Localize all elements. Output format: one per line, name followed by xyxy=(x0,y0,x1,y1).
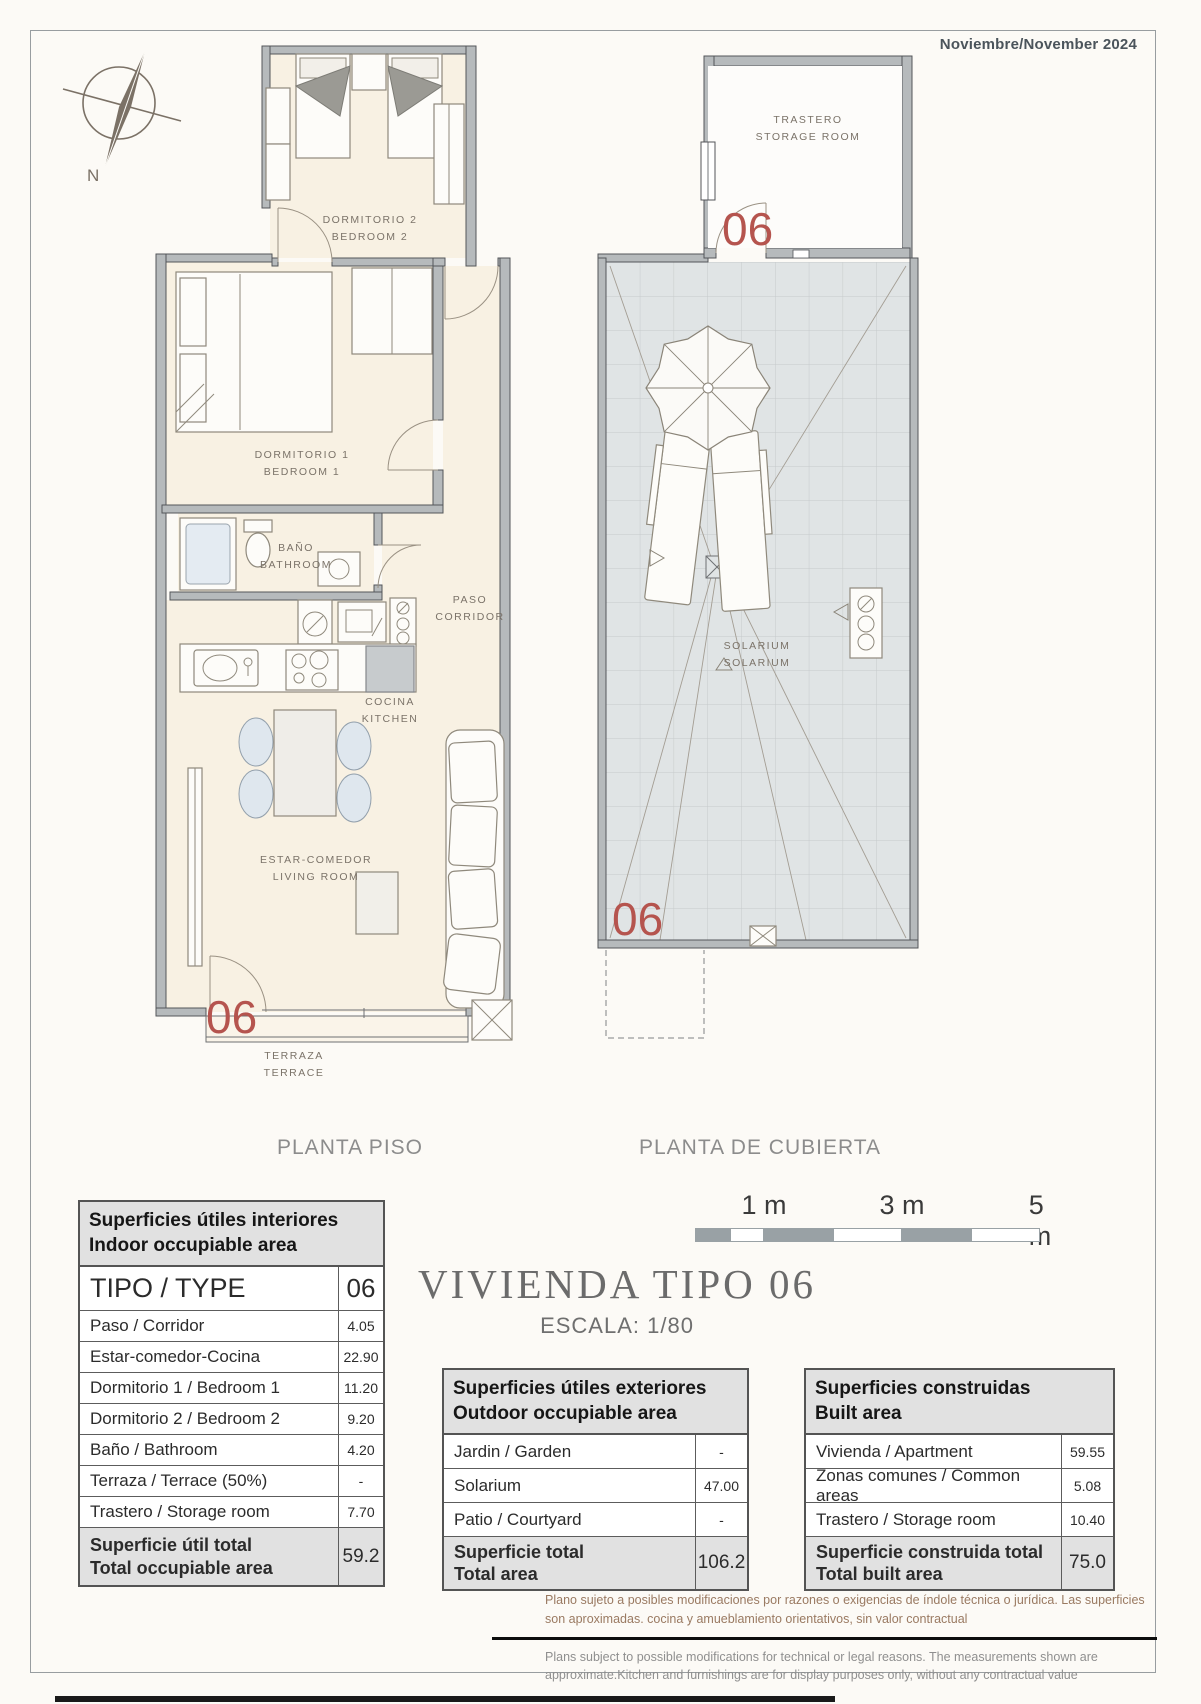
table-outdoor-areas: Superficies útiles exteriores Outdoor oc… xyxy=(442,1368,749,1591)
table-row: Trastero / Storage room 7.70 xyxy=(80,1497,383,1528)
roof-vent-icon xyxy=(850,588,882,658)
scale-label-5m: 5 m xyxy=(1029,1190,1051,1252)
bottom-rule xyxy=(55,1696,835,1702)
sheet-scale: ESCALA: 1/80 xyxy=(417,1313,817,1339)
compass-north-label: N xyxy=(87,166,99,185)
roof-notch xyxy=(793,250,809,258)
disclaimer-divider xyxy=(492,1637,1157,1640)
room-label-kitchen: COCINAKITCHEN xyxy=(362,694,419,729)
table-outdoor-title-en: Outdoor occupiable area xyxy=(453,1402,738,1427)
table-built-title-en: Built area xyxy=(815,1402,1104,1427)
disclaimer-es: Plano sujeto a posibles modificaciones p… xyxy=(545,1591,1157,1629)
room-label-terrace: TERRAZATERRACE xyxy=(264,1048,325,1083)
unit-number-solarium: 06 xyxy=(612,896,663,942)
disclaimer: Plano sujeto a posibles modificaciones p… xyxy=(545,1591,1157,1685)
table-row: Vivienda / Apartment 59.55 xyxy=(806,1435,1113,1469)
table-outdoor-title-es: Superficies útiles exteriores xyxy=(453,1377,738,1402)
sofa-icon xyxy=(443,730,504,1008)
table-built-title-es: Superficies construidas xyxy=(815,1377,1104,1402)
room-label-living: ESTAR-COMEDORLIVING ROOM xyxy=(260,852,372,887)
room-label-solarium: SOLARIUMSOLARIUM xyxy=(724,638,791,673)
scale-label-1m: 1 m xyxy=(741,1190,786,1221)
table-row: Jardin / Garden - xyxy=(444,1435,747,1469)
table-indoor-title-en: Indoor occupiable area xyxy=(89,1234,374,1259)
room-label-bedroom1: DORMITORIO 1BEDROOM 1 xyxy=(255,447,350,482)
table-row: Patio / Courtyard - xyxy=(444,1503,747,1537)
floor-plan-title: PLANTA PISO xyxy=(277,1136,423,1160)
table-total-row: Superficie construida total Total built … xyxy=(806,1537,1113,1589)
floor-plan-drawing xyxy=(150,45,525,1050)
table-row: Zonas comunes / Common areas 5.08 xyxy=(806,1469,1113,1503)
ac-unit-icon xyxy=(472,1000,512,1040)
room-label-bathroom: BAÑOBATHROOM xyxy=(260,540,332,575)
scale-bar-segments xyxy=(695,1228,1041,1242)
table-built-areas: Superficies construidas Built area Vivie… xyxy=(804,1368,1115,1591)
table-row: Trastero / Storage room 10.40 xyxy=(806,1503,1113,1537)
disclaimer-en: Plans subject to possible modifications … xyxy=(545,1648,1157,1686)
table-indoor-header: Superficies útiles interiores Indoor occ… xyxy=(80,1202,383,1267)
table-total-row: Superficie total Total area 106.2 xyxy=(444,1537,747,1589)
room-label-storage: TRASTEROSTORAGE ROOM xyxy=(756,112,861,147)
table-row: Dormitorio 2 / Bedroom 2 9.20 xyxy=(80,1404,383,1435)
table-row-type: TIPO / TYPE 06 xyxy=(80,1267,383,1311)
umbrella-icon xyxy=(646,326,770,450)
table-row: Solarium 47.00 xyxy=(444,1469,747,1503)
dashed-outline-below xyxy=(606,950,704,1038)
table-total-row: Superficie útil total Total occupiable a… xyxy=(80,1528,383,1585)
roof-hatch-icon xyxy=(750,926,776,946)
room-label-corridor: PASOCORRIDOR xyxy=(435,592,504,627)
unit-number-storage: 06 xyxy=(722,206,773,252)
sheet-title: VIVIENDA TIPO 06 xyxy=(417,1260,817,1308)
table-row: Paso / Corridor 4.05 xyxy=(80,1311,383,1342)
table-indoor-areas: Superficies útiles interiores Indoor occ… xyxy=(78,1200,385,1587)
table-indoor-title-es: Superficies útiles interiores xyxy=(89,1209,374,1234)
room-label-bedroom2: DORMITORIO 2BEDROOM 2 xyxy=(323,212,418,247)
scale-bar: 1 m 3 m 5 m xyxy=(695,1190,1041,1242)
table-row: Estar-comedor-Cocina 22.90 xyxy=(80,1342,383,1373)
scale-label-3m: 3 m xyxy=(879,1190,924,1221)
roof-plan-title: PLANTA DE CUBIERTA xyxy=(639,1136,881,1160)
table-row: Baño / Bathroom 4.20 xyxy=(80,1435,383,1466)
storage-window xyxy=(701,142,715,200)
plan-sheet: Noviembre/November 2024 N xyxy=(0,0,1201,1704)
table-built-header: Superficies construidas Built area xyxy=(806,1370,1113,1435)
dining-set xyxy=(239,710,371,822)
unit-number-floor: 06 xyxy=(206,994,257,1040)
table-outdoor-header: Superficies útiles exteriores Outdoor oc… xyxy=(444,1370,747,1435)
table-row: Dormitorio 1 / Bedroom 1 11.20 xyxy=(80,1373,383,1404)
date-label: Noviembre/November 2024 xyxy=(940,36,1137,53)
table-row: Terraza / Terrace (50%) - xyxy=(80,1466,383,1497)
